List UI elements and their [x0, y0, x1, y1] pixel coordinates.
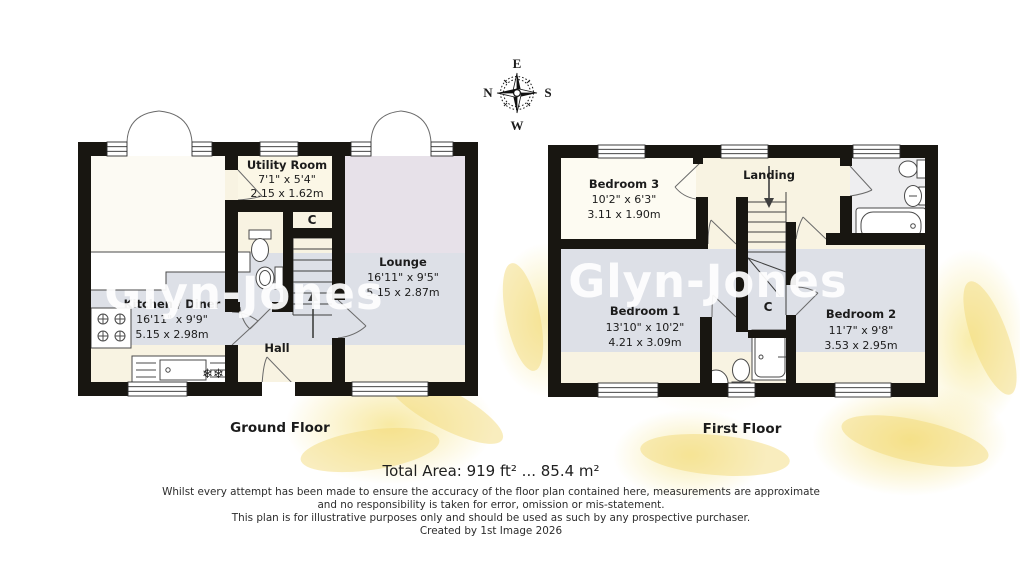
- floorplan-page: E S W N: [0, 0, 1020, 585]
- compass-star: [497, 73, 537, 113]
- disclaimer-line-1: Whilst every attempt has been made to en…: [0, 486, 982, 499]
- bedroom2-dims-imperial: 11'7" x 9'8": [829, 324, 894, 337]
- watermark-text-first: Glyn-Jones: [568, 255, 847, 308]
- freezer-icon: ❄❄: [202, 367, 224, 382]
- gf-cupboard-label: C: [308, 213, 317, 227]
- landing-name: Landing: [743, 168, 795, 182]
- bathroom-toilet-icon: [899, 160, 927, 178]
- disclaimer-line-4: Created by 1st Image 2026: [0, 525, 982, 538]
- bedroom3-name: Bedroom 3: [589, 177, 659, 191]
- total-area-text: Total Area: 919 ft² ... 85.4 m²: [0, 462, 982, 480]
- ground-floor-label: Ground Floor: [230, 420, 330, 436]
- first-floor-plan: Bedroom 3 10'2" x 6'3" 3.11 x 1.90m Land…: [530, 130, 950, 410]
- lounge-name: Lounge: [379, 255, 427, 269]
- compass-west-label: W: [511, 118, 524, 133]
- bedroom1-dims-metric: 4.21 x 3.09m: [608, 336, 681, 349]
- hall-name: Hall: [264, 341, 289, 355]
- bedroom1-dims-imperial: 13'10" x 10'2": [606, 321, 685, 334]
- compass-south-label: S: [544, 85, 551, 100]
- bedroom2-name: Bedroom 2: [826, 307, 896, 321]
- bathroom-sink-icon: [905, 186, 927, 207]
- bedroom3-dims-metric: 3.11 x 1.90m: [587, 208, 660, 221]
- kitchen-diner-dims-metric: 5.15 x 2.98m: [135, 328, 208, 341]
- disclaimer-line-3: This plan is for illustrative purposes o…: [0, 512, 982, 525]
- utility-room-dims-imperial: 7'1" x 5'4": [258, 173, 316, 186]
- watermark-text-ground: Glyn-Jones: [104, 267, 383, 320]
- first-floor-label: First Floor: [703, 421, 782, 437]
- bedroom3-dims-imperial: 10'2" x 6'3": [592, 193, 657, 206]
- utility-room-dims-metric: 2.15 x 1.62m: [250, 187, 323, 200]
- disclaimer-line-2: and no responsibility is taken for error…: [0, 499, 982, 512]
- ground-floor-plan: ❄❄: [60, 95, 490, 415]
- compass-east-label: E: [513, 56, 522, 71]
- utility-room-name: Utility Room: [247, 158, 327, 172]
- flower-petal: [953, 275, 1020, 400]
- bedroom2-dims-metric: 3.53 x 2.95m: [824, 339, 897, 352]
